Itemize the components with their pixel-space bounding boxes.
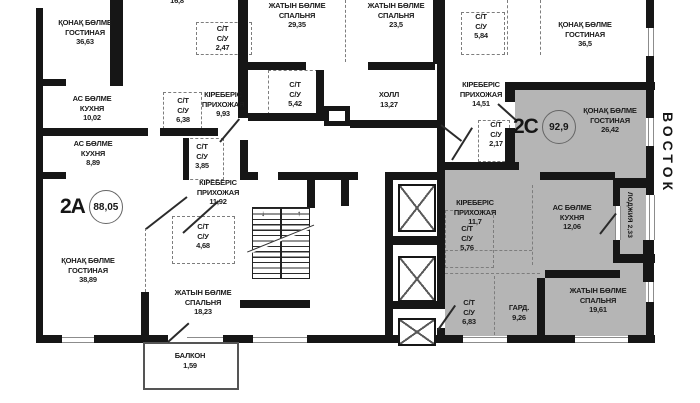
wall bbox=[507, 335, 575, 343]
room-label-wardrobe-926: ГАРД. 9,26 bbox=[499, 303, 539, 322]
wall bbox=[385, 245, 393, 303]
wall bbox=[437, 170, 445, 302]
partition-line bbox=[507, 0, 508, 55]
room-label-bath-584: С/Т С/У 5,84 bbox=[462, 12, 500, 41]
wall bbox=[385, 180, 393, 238]
partition-line bbox=[540, 0, 541, 55]
partition-line bbox=[445, 273, 540, 274]
room-label-living-3889: ҚОНАҚ БӨЛМЕ ГОСТИНАЯ 38,89 bbox=[48, 256, 128, 285]
loggia-door-glazing bbox=[615, 206, 621, 240]
wall bbox=[307, 180, 315, 208]
wall bbox=[613, 188, 620, 206]
room-label-hallway-993: КІРЕБЕРІС ПРИХОЖАЯ 9,93 bbox=[190, 90, 256, 119]
wall bbox=[36, 128, 148, 136]
room-label-hallway-117: КІРЕБЕРІС ПРИХОЖАЯ 11,7 bbox=[442, 198, 508, 227]
room-label-kitchen-1002: АС БӨЛМЕ КУХНЯ 10,02 bbox=[52, 94, 132, 123]
wall bbox=[545, 270, 620, 278]
window bbox=[463, 337, 507, 343]
partition-line bbox=[494, 276, 495, 335]
room-label-loggia-233: ЛОДЖИЯ 2,33 bbox=[626, 192, 633, 252]
wall bbox=[248, 62, 306, 70]
room-label-hall-1327: ХОЛЛ 13,27 bbox=[359, 90, 419, 109]
window bbox=[648, 282, 654, 302]
wall bbox=[36, 79, 66, 86]
wall bbox=[278, 172, 358, 180]
room-label-bedroom-235: ЖАТЫН БӨЛМЕ СПАЛЬНЯ 23,5 bbox=[356, 1, 436, 30]
door-swing bbox=[219, 118, 240, 142]
room-label-bath-385: С/Т С/У 3,85 bbox=[184, 142, 220, 171]
window bbox=[253, 337, 307, 343]
room-label-bath-217: С/Т С/У 2,17 bbox=[478, 120, 514, 149]
wall bbox=[385, 172, 445, 180]
area-circle: 92,9 bbox=[542, 110, 576, 144]
room-label-bedroom-1961: ЖАТЫН БӨЛМЕ СПАЛЬНЯ 19,61 bbox=[558, 286, 638, 315]
wall bbox=[540, 172, 615, 180]
room-label-balcony-159: БАЛКОН 1,59 bbox=[150, 351, 230, 370]
wall bbox=[385, 309, 393, 337]
room-label-bath-468: С/Т С/У 4,68 bbox=[185, 222, 221, 251]
elevator-shaft bbox=[398, 318, 436, 346]
room-label-bath-247: С/Т С/У 2,47 bbox=[200, 24, 245, 53]
room-label-hallway-1192: КІРЕБЕРІС ПРИХОЖАЯ 11,92 bbox=[185, 178, 251, 207]
stair-arrow-icon: ↑ bbox=[297, 210, 301, 218]
wall bbox=[437, 64, 445, 162]
elevator-shaft bbox=[398, 256, 436, 302]
wall bbox=[385, 236, 445, 245]
room-label-bedroom-1823: ЖАТЫН БӨЛМЕ СПАЛЬНЯ 18,23 bbox=[163, 288, 243, 317]
floor-plan: ↓ ↑ ҚОНАҚ БӨЛМЕ ГОСТИНАЯ 36,63 16,8 С/Т bbox=[0, 0, 700, 403]
apartment-badge-2c: 2C 92,9 bbox=[513, 110, 576, 144]
elevator-shaft bbox=[398, 184, 436, 232]
stair-arrow-icon: ↓ bbox=[261, 210, 265, 218]
wall bbox=[646, 302, 654, 343]
wall bbox=[613, 178, 654, 188]
wall bbox=[36, 172, 66, 179]
room-label-cut-168: 16,8 bbox=[147, 0, 207, 6]
window bbox=[62, 337, 94, 343]
apartment-badge-2a: 2A 88,05 bbox=[60, 190, 123, 224]
loggia-glazing bbox=[649, 195, 655, 240]
wall bbox=[141, 292, 149, 336]
wall bbox=[341, 180, 349, 206]
wall bbox=[240, 300, 310, 308]
door-swing bbox=[451, 127, 473, 160]
wall bbox=[613, 254, 655, 263]
wall bbox=[505, 82, 655, 90]
room-label-hallway-1451: КІРЕБЕРІС ПРИХОЖАЯ 14,51 bbox=[448, 80, 514, 109]
room-label-living-2642: ҚОНАҚ БӨЛМЕ ГОСТИНАЯ 26,42 bbox=[570, 106, 650, 135]
staircase: ↓ ↑ bbox=[252, 207, 310, 279]
room-label-living-3663: ҚОНАҚ БӨЛМЕ ГОСТИНАЯ 36,63 bbox=[45, 18, 125, 47]
room-label-living-365: ҚОНАҚ БӨЛМЕ ГОСТИНАЯ 36,5 bbox=[545, 20, 625, 49]
wall bbox=[160, 128, 218, 136]
wall bbox=[368, 62, 435, 70]
partition-line bbox=[345, 0, 346, 62]
wall bbox=[646, 0, 654, 28]
wall bbox=[36, 335, 62, 343]
room-label-kitchen-889: АС БӨЛМЕ КУХНЯ 8,89 bbox=[53, 139, 133, 168]
room-label-bath-683: С/Т С/У 6,83 bbox=[451, 298, 487, 327]
wall bbox=[248, 113, 324, 121]
compass-east-label: ВОСТОК bbox=[660, 112, 676, 242]
room-label-bath-542: С/Т С/У 5,42 bbox=[277, 80, 313, 109]
wall bbox=[385, 301, 445, 309]
room-label-bedroom-2935: ЖАТЫН БӨЛМЕ СПАЛЬНЯ 29,35 bbox=[257, 1, 337, 30]
wall bbox=[350, 120, 443, 128]
window bbox=[575, 337, 628, 343]
shaft-box bbox=[324, 106, 350, 126]
partition-line bbox=[145, 228, 146, 292]
window bbox=[648, 28, 654, 56]
area-circle: 88,05 bbox=[89, 190, 123, 224]
room-label-kitchen-1206: АС БӨЛМЕ КУХНЯ 12,06 bbox=[532, 203, 612, 232]
room-label-bath-576: С/Т С/У 5,76 bbox=[449, 224, 485, 253]
